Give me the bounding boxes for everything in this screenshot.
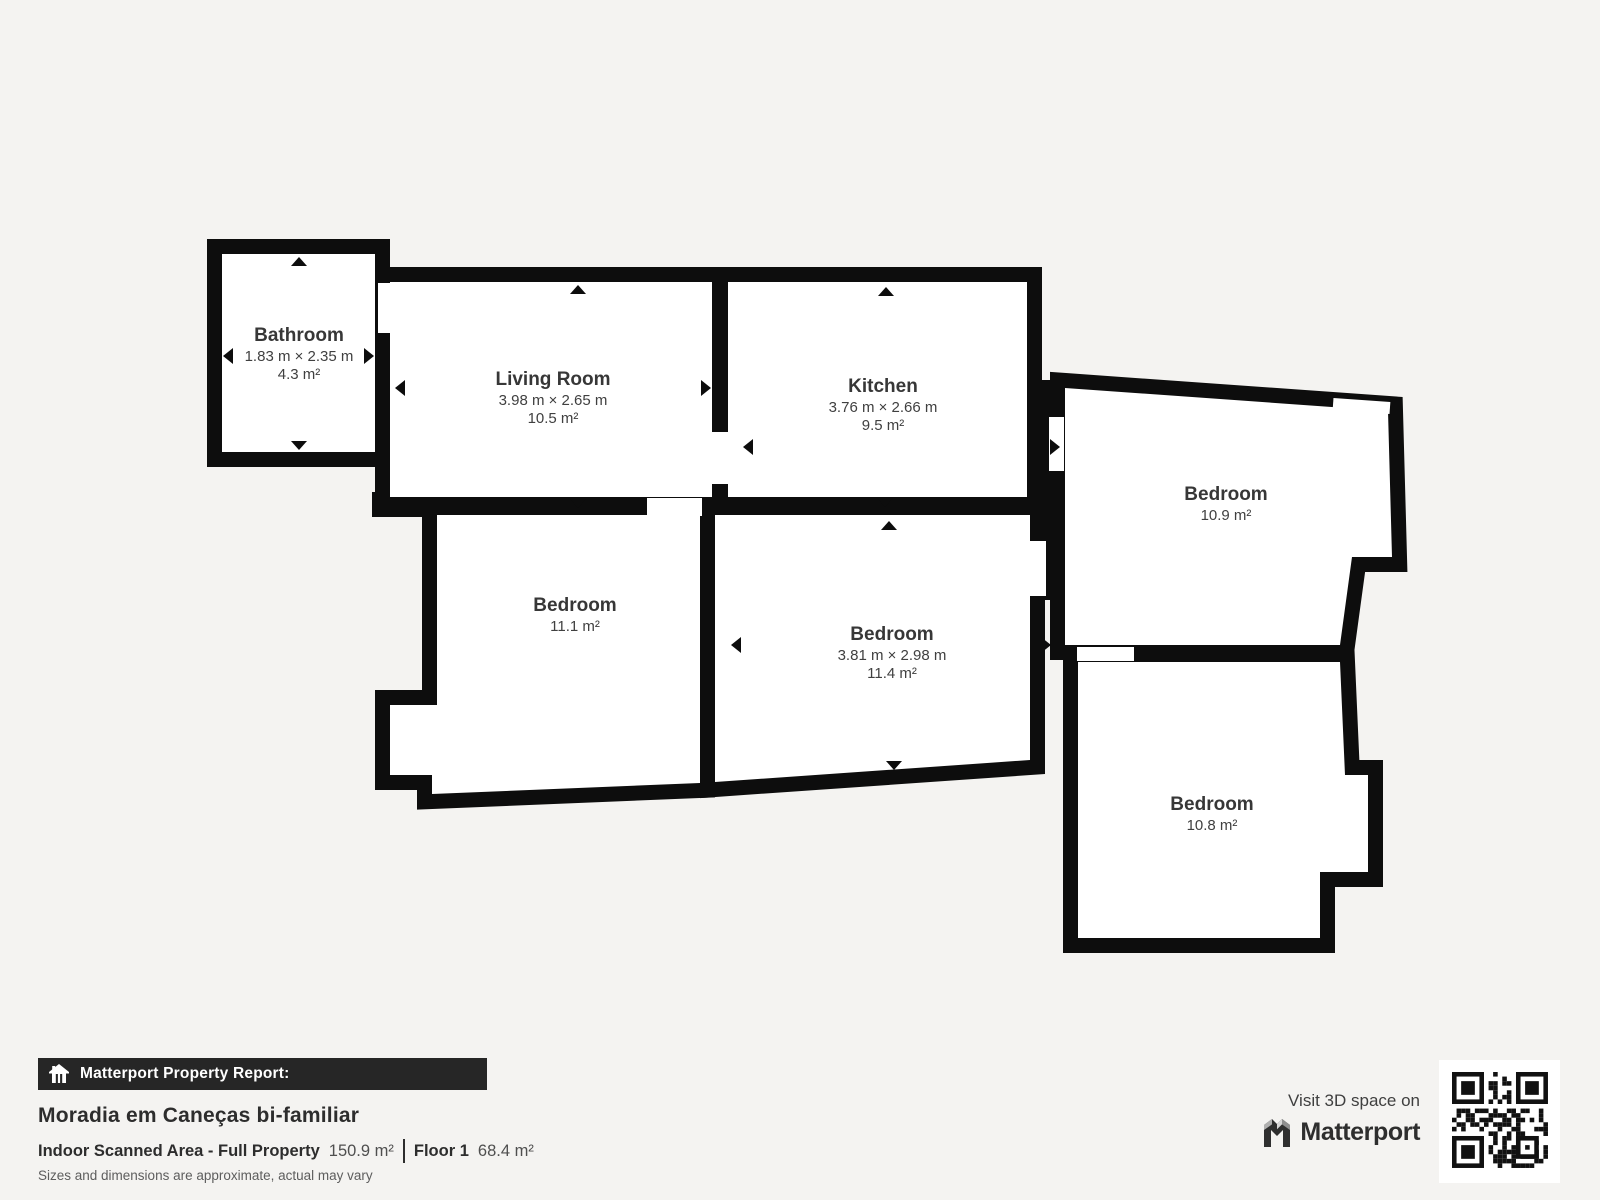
banner-label: Matterport Property Report: [80,1065,290,1083]
dim-arrow-right-bedroom-middle [1041,637,1051,653]
visit-3d-label: Visit 3D space on [1262,1091,1420,1111]
room-label-kitchen-area: 9.5 m² [862,417,905,434]
room-label-kitchen-dims: 3.76 m × 2.66 m [829,399,938,416]
scanned-area-label: Indoor Scanned Area - Full Property [38,1142,320,1161]
room-label-bathroom-name: Bathroom [254,325,344,346]
room-label-bedroom-right-area: 10.9 m² [1201,507,1252,524]
matterport-brand-row: Matterport [1262,1116,1420,1149]
room-label-bedroom-bottom-area: 10.8 m² [1187,817,1238,834]
room-bedroom-left [390,515,700,794]
room-label-bedroom-right-name: Bedroom [1184,484,1267,505]
room-label-living-name: Living Room [495,369,610,390]
room-label-living-dims: 3.98 m × 2.65 m [499,392,608,409]
door-slot-middle-right-bedroom [1030,541,1046,596]
matterport-logo-icon [1262,1116,1292,1149]
floor-label: Floor 1 [414,1142,469,1161]
qr-code [1439,1060,1560,1183]
property-report-page: Bathroom 1.83 m × 2.35 m 4.3 m² Living R… [0,0,1600,1200]
room-label-bedroom-middle-name: Bedroom [850,624,933,645]
scanned-area-value: 150.9 m² [329,1142,394,1161]
report-banner: Matterport Property Report: [38,1058,487,1090]
qr-code-pattern [1439,1060,1560,1183]
property-title: Moradia em Caneças bi-familiar [38,1104,359,1128]
floor-area-value: 68.4 m² [478,1142,534,1161]
room-label-bedroom-middle-area: 11.4 m² [867,665,917,682]
room-label-living-area: 10.5 m² [528,410,579,427]
room-label-bathroom-dims: 1.83 m × 2.35 m [245,348,354,365]
matterport-promo: Visit 3D space on Matterport [1262,1091,1420,1149]
room-label-bedroom-left-area: 11.1 m² [550,618,600,635]
matterport-wordmark: Matterport [1300,1118,1420,1147]
door-slot-right-bottom-bedroom [1077,647,1134,661]
area-info-line: Indoor Scanned Area - Full Property 150.… [38,1139,534,1163]
room-label-bathroom-area: 4.3 m² [278,366,321,383]
disclaimer-text: Sizes and dimensions are approximate, ac… [38,1168,373,1183]
door-slot-bathroom-living [378,283,390,333]
info-divider [403,1139,405,1163]
property-house-icon [49,1064,69,1084]
room-label-bedroom-middle-dims: 3.81 m × 2.98 m [838,647,947,664]
floor-plan: Bathroom 1.83 m × 2.35 m 4.3 m² Living R… [0,0,1600,1200]
room-label-bedroom-bottom-name: Bedroom [1170,794,1253,815]
door-slot-living-bedroom [647,498,702,516]
room-label-kitchen-name: Kitchen [848,376,918,397]
room-label-bedroom-left-name: Bedroom [533,595,616,616]
door-slot-living-kitchen [710,432,730,484]
